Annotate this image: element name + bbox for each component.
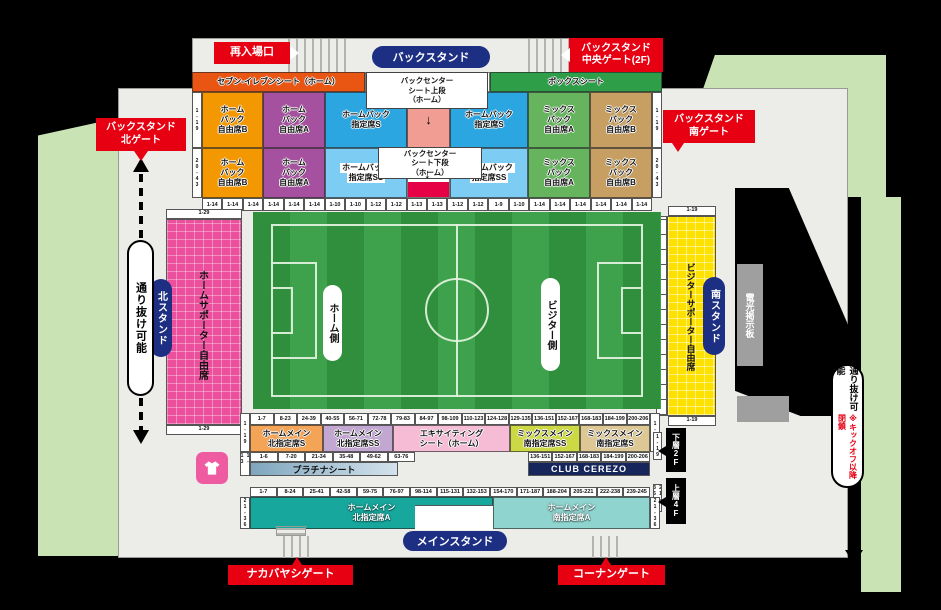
seat-number-range: 40-55 xyxy=(321,413,345,425)
seat-number-range: 1-14 xyxy=(611,198,631,211)
seat-number-range: 84-97 xyxy=(415,413,439,425)
seat-number-range: 1-6 xyxy=(250,452,278,462)
seat-number-range: 129-135 xyxy=(509,413,533,425)
seat-number-range: 1-10 xyxy=(345,198,365,211)
structure-block xyxy=(737,396,789,422)
main-upper-blocks: ホームメイン北指定席Sホームメイン北指定席SSエキサイティングシート（ホーム）ミ… xyxy=(250,425,650,452)
seat-number-range: 1-14 xyxy=(570,198,590,211)
visitor-side-label: ビジター側 xyxy=(541,278,560,371)
seat-number-range: 124-128 xyxy=(485,413,509,425)
seat-number-range: 188-204 xyxy=(543,487,570,497)
seat-number-range: 63-76 xyxy=(388,452,416,462)
seat-number-range: 222-238 xyxy=(597,487,624,497)
main-stairs-left xyxy=(283,536,313,558)
row-range-cell: 1-13 xyxy=(240,452,250,476)
seat-number-range: 21-34 xyxy=(305,452,333,462)
seat-number-range: 1-7 xyxy=(250,487,277,497)
platinum-seat-label: プラチナシート xyxy=(292,463,355,476)
back-south-gate-pointer xyxy=(672,143,684,152)
seat-number-range: 79-83 xyxy=(391,413,415,425)
seat-number-range: 25-41 xyxy=(303,487,330,497)
konan-gate[interactable]: コーナンゲート xyxy=(558,565,665,585)
home-main-south-reserved-a[interactable]: ホームメイン南指定席A xyxy=(493,497,650,529)
seat-number-range: 59-75 xyxy=(357,487,384,497)
back-center-gate[interactable]: バックスタンド 中央ゲート(2F) xyxy=(569,38,663,72)
back-center-upper-label: バックセンターシート上段（ホーム） xyxy=(366,72,488,109)
structure-steps xyxy=(276,526,306,536)
seat-number-range: 136-151 xyxy=(528,452,552,462)
row-range-cell: 21-36 xyxy=(240,497,250,529)
seat-number-range: 24-39 xyxy=(297,413,321,425)
seat-number-range: 98-109 xyxy=(438,413,462,425)
passage-right-arrow-down-icon xyxy=(845,550,863,564)
seat-number-range: 35-48 xyxy=(333,452,361,462)
seat-number-range: 1-10 xyxy=(509,198,529,211)
pitch-goal-left xyxy=(271,287,293,334)
seat-number-range: 1-14 xyxy=(529,198,549,211)
seat-number-range: 1-7 xyxy=(250,413,274,425)
seat-number-range: 1-14 xyxy=(632,198,652,211)
home-main-north-reserved-ss[interactable]: ホームメイン北指定席SS xyxy=(323,425,393,452)
south-rows-bottom: 1-19 xyxy=(668,416,716,426)
home-side-label: ホーム側 xyxy=(323,285,342,361)
visitor-supporter-free-seat-label: ビジターサポーター自由席 xyxy=(681,228,701,406)
nakabayashi-gate-pointer xyxy=(292,557,302,565)
seat-number-range: 168-183 xyxy=(577,452,601,462)
seat-number-range: 1-12 xyxy=(468,198,488,211)
seat-number-range: 1-12 xyxy=(447,198,467,211)
mix-main-south-reserved-ss[interactable]: ミックスメイン南指定席SS xyxy=(510,425,580,452)
seat-number-range: 152-167 xyxy=(556,413,580,425)
main-stand-label: メインスタンド xyxy=(403,531,507,551)
passage-right-label: 通り抜け可能 ※キックオフ以降閉鎖 xyxy=(831,364,864,488)
row-range-cell: 1-19 xyxy=(240,413,250,452)
row-range-cell: 1-19 xyxy=(652,92,662,148)
seat-number-range: 98-114 xyxy=(410,487,437,497)
seat-number-range: 1-13 xyxy=(407,198,427,211)
seat-number-range: 1-14 xyxy=(243,198,263,211)
home-supporter-free-seat-label: ホームサポーター自由席 xyxy=(192,240,212,410)
seat-number-range: 1-14 xyxy=(263,198,283,211)
seat-number-range: 1-12 xyxy=(366,198,386,211)
seat-number-range: 1-14 xyxy=(284,198,304,211)
seat-number-range: 168-183 xyxy=(579,413,603,425)
seat-number-range: 132-153 xyxy=(463,487,490,497)
lower-floor-pointer xyxy=(658,446,666,456)
mix-back-free-b[interactable]: ミックスバック自由席B xyxy=(590,148,652,198)
passage-right-note: ※キックオフ以降閉鎖 xyxy=(837,414,859,486)
pitch: ホーム側 ビジター側 xyxy=(253,212,661,409)
seat-number-range: 200-206 xyxy=(626,452,650,462)
mix-back-free-a[interactable]: ミックスバック自由席A xyxy=(528,148,590,198)
main-upper-seat-numbers: 1-78-2324-3940-5556-7172-7879-8384-9798-… xyxy=(250,413,650,425)
seat-number-range: 152-167 xyxy=(552,452,576,462)
pitch-center-circle xyxy=(425,278,489,342)
konan-gate-pointer xyxy=(601,557,611,565)
seven-eleven-seat[interactable]: セブン-イレブンシート（ホーム） xyxy=(192,72,365,92)
row-range-cell: 20-43 xyxy=(192,148,202,198)
upper-floor-label: 上層4F xyxy=(666,478,686,524)
upper-floor-pointer xyxy=(658,497,666,507)
platinum-seat[interactable]: プラチナシート xyxy=(250,462,398,476)
south-rows-top: 1-19 xyxy=(668,206,716,216)
north-rows-bottom: 1-29 xyxy=(166,425,242,435)
passage-right-text: 通り抜け可能 xyxy=(835,366,861,414)
seat-number-range: 76-97 xyxy=(383,487,410,497)
home-back-free-b[interactable]: ホームバック自由席B xyxy=(202,148,263,198)
seat-number-range: 8-24 xyxy=(277,487,304,497)
seat-number-range: 154-170 xyxy=(490,487,517,497)
back-center-gate-pointer xyxy=(561,48,570,62)
back-north-gate[interactable]: バックスタンド 北ゲート xyxy=(96,118,186,151)
south-stand-label: 南スタンド xyxy=(703,277,725,355)
seat-number-range: 171-187 xyxy=(517,487,544,497)
row-range-cell: 1-19 xyxy=(192,92,202,148)
main-stairs-right xyxy=(592,536,622,558)
home-back-free-b[interactable]: ホームバック自由席B xyxy=(202,92,263,148)
seat-number-range: 184-199 xyxy=(603,413,627,425)
pitch-goal-right xyxy=(621,287,643,334)
green-area-right xyxy=(861,197,901,592)
seat-number-range: 56-71 xyxy=(344,413,368,425)
seat-number-range: 8-23 xyxy=(274,413,298,425)
scoreboard: 電光掲示板 xyxy=(737,264,763,366)
exciting-seat-home[interactable]: エキサイティングシート（ホーム） xyxy=(393,425,510,452)
mix-back-free-b[interactable]: ミックスバック自由席B xyxy=(590,92,652,148)
seat-number-range: 72-78 xyxy=(368,413,392,425)
row-range-cell: 20-43 xyxy=(652,148,662,198)
reentry-gate[interactable]: 再入場口 xyxy=(214,42,290,64)
seat-number-range: 1-12 xyxy=(386,198,406,211)
seat-number-range: 136-151 xyxy=(532,413,556,425)
stadium-seat-map: 電光掲示板 バックスタンド 再入場口 バックスタンド 中央ゲート(2F) バック… xyxy=(0,0,941,610)
down-arrow-icon: ↓ xyxy=(424,167,431,180)
seat-number-range: 1-14 xyxy=(591,198,611,211)
passage-arrow-down-icon xyxy=(133,430,149,444)
main-mid-numbers-left: 1-67-2021-3435-4849-6263-76 xyxy=(250,452,415,462)
mix-back-free-a[interactable]: ミックスバック自由席A xyxy=(528,92,590,148)
seat-number-range: 1-13 xyxy=(427,198,447,211)
home-back-free-a[interactable]: ホームバック自由席A xyxy=(263,92,325,148)
north-rows-top: 1-29 xyxy=(166,209,242,219)
nakabayashi-gate[interactable]: ナカバヤシゲート xyxy=(228,565,353,585)
main-stand-notch xyxy=(415,505,493,530)
box-seat[interactable]: ボックスシート xyxy=(490,72,662,92)
seat-number-range: 115-131 xyxy=(437,487,464,497)
seat-number-range: 184-199 xyxy=(601,452,625,462)
seat-number-range: 7-20 xyxy=(278,452,306,462)
seat-number-range: 1-14 xyxy=(550,198,570,211)
lower-floor-label: 下層2F xyxy=(666,428,686,472)
home-shirt-icon xyxy=(196,452,228,484)
seat-number-range: 110-123 xyxy=(462,413,486,425)
home-back-free-a[interactable]: ホームバック自由席A xyxy=(263,148,325,198)
mix-main-south-reserved-s[interactable]: ミックスメイン南指定席S xyxy=(580,425,650,452)
seat-number-range: 200-206 xyxy=(627,413,651,425)
home-main-north-reserved-s[interactable]: ホームメイン北指定席S xyxy=(250,425,323,452)
green-area-left xyxy=(38,118,118,556)
club-cerezo-seat[interactable]: CLUB CEREZO xyxy=(528,462,650,476)
seat-number-range: 1-10 xyxy=(325,198,345,211)
down-arrow-icon: ↓ xyxy=(425,113,432,126)
back-north-gate-pointer xyxy=(134,151,148,161)
seat-number-range: 1-14 xyxy=(304,198,324,211)
back-south-gate[interactable]: バックスタンド 南ゲート xyxy=(663,110,755,143)
club-cerezo-label: CLUB CEREZO xyxy=(551,464,627,474)
passage-left-label: 通り抜け可能 xyxy=(127,240,154,396)
reentry-gate-pointer xyxy=(290,46,299,60)
main-mid-numbers-right: 136-151152-167168-183184-199200-206 xyxy=(528,452,650,462)
back-stand-label: バックスタンド xyxy=(372,46,490,68)
seat-number-range: 42-58 xyxy=(330,487,357,497)
back-seat-numbers: 1-141-141-141-141-141-141-101-101-121-12… xyxy=(202,198,652,211)
seat-number-range: 239-245 xyxy=(623,487,650,497)
seat-number-range: 49-62 xyxy=(360,452,388,462)
seat-number-range: 1-9 xyxy=(488,198,508,211)
main-lower-seat-numbers: 1-78-2425-4142-5859-7576-9798-114115-131… xyxy=(250,487,650,497)
seat-number-range: 205-221 xyxy=(570,487,597,497)
